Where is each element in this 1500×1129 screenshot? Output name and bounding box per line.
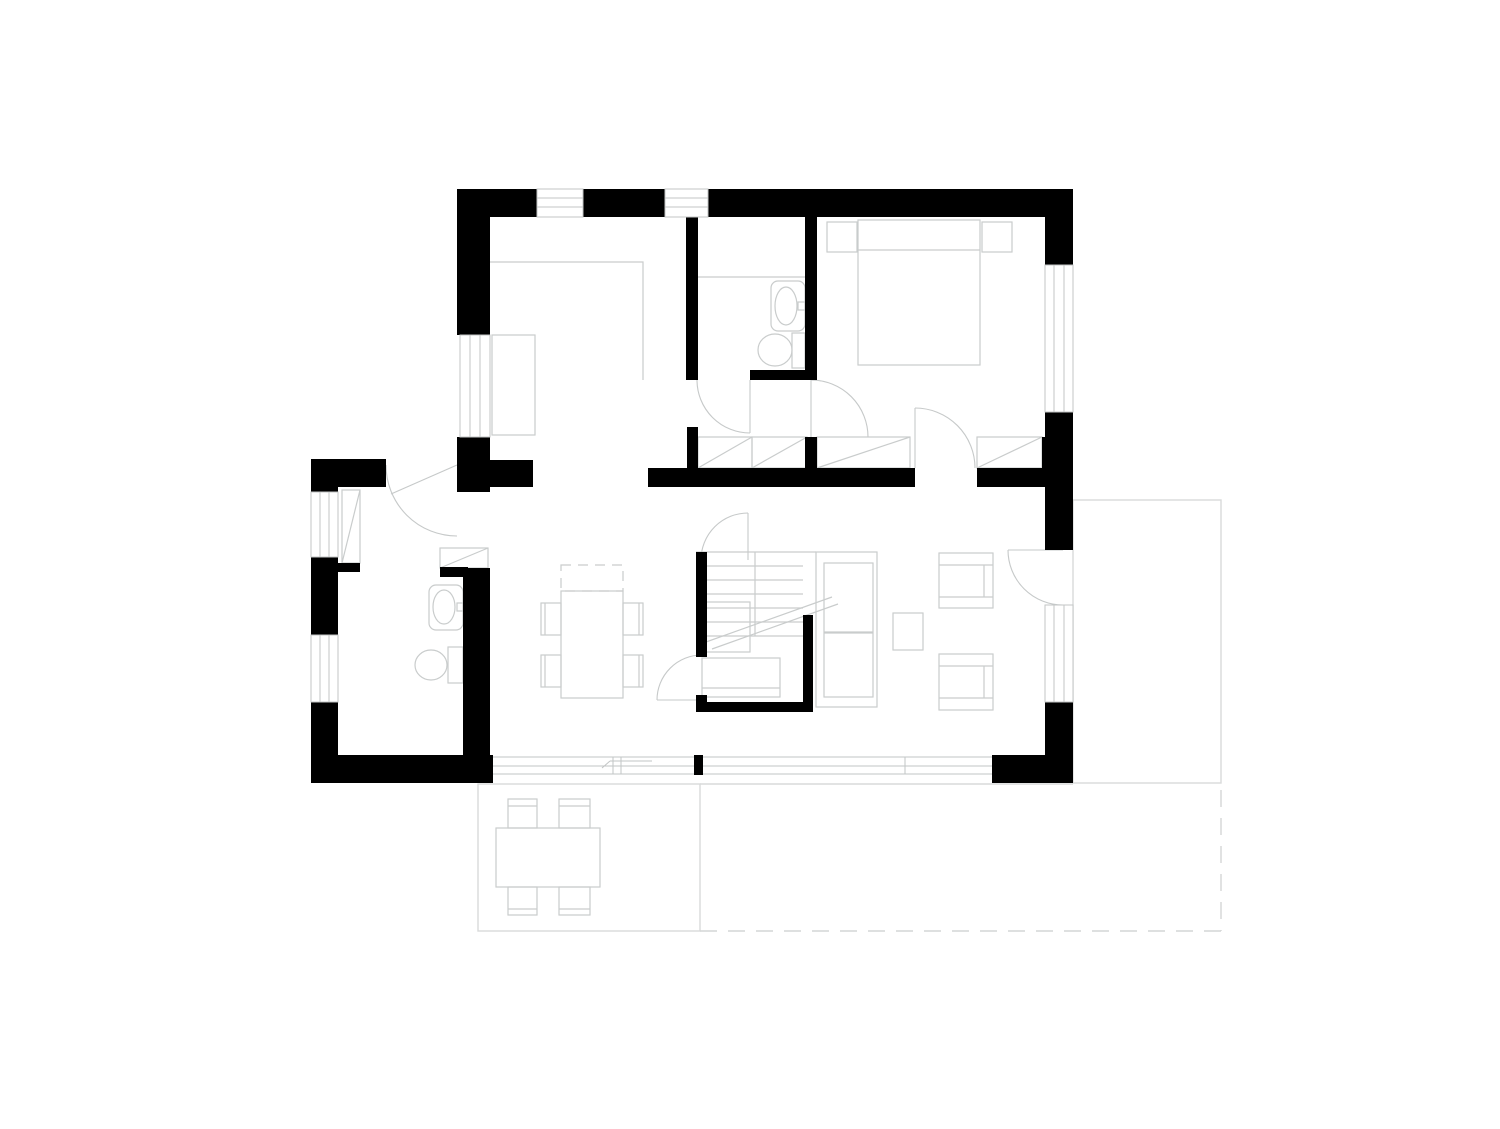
wall-top — [708, 189, 1073, 217]
carport-outline — [1073, 500, 1221, 783]
dining-chair — [623, 655, 643, 687]
sofa-cushion — [824, 633, 873, 697]
wall-bath-bedroom — [805, 217, 817, 380]
stair-break-line — [712, 604, 838, 649]
wardrobe-diagonal — [817, 437, 910, 468]
sofa — [816, 552, 877, 707]
window — [1045, 265, 1073, 412]
wall-hall-living — [648, 468, 915, 487]
closet-box — [703, 602, 750, 652]
wall-stair — [803, 615, 813, 712]
wc-faucet — [457, 603, 463, 611]
wall-pier — [694, 755, 703, 775]
armchair — [939, 654, 993, 710]
wall-wc-top — [338, 563, 360, 572]
door-swing-arc — [657, 655, 702, 700]
dashed-boundary — [700, 790, 1221, 931]
armchair — [939, 553, 993, 608]
bath-toilet-bowl — [758, 334, 792, 366]
coffee-table — [893, 613, 923, 650]
window — [1045, 605, 1073, 702]
wall-stair — [696, 552, 707, 657]
wall-annex-left — [311, 557, 338, 635]
wall-bottom — [992, 755, 1073, 783]
patio-chair — [508, 887, 537, 915]
bed — [858, 220, 980, 365]
glass-wall — [493, 757, 992, 774]
nightstand — [982, 222, 1012, 252]
bath-toilet-tank — [792, 333, 805, 368]
stair-break-line — [706, 597, 832, 642]
window — [665, 189, 708, 217]
bath-faucet — [798, 302, 805, 310]
wardrobe-diagonal — [752, 437, 807, 468]
wc-sink-basin — [433, 590, 455, 624]
sliding-door-symbol — [602, 761, 610, 768]
patio-table — [496, 828, 600, 887]
wardrobe-diagonal — [977, 437, 1042, 468]
site-outlines — [478, 500, 1221, 931]
wall-stub — [1042, 437, 1073, 468]
dining-chair — [623, 603, 643, 635]
door-swing-arc — [386, 465, 457, 536]
wall-left — [457, 437, 490, 492]
door-leaf — [391, 465, 457, 494]
floor-plan-page — [0, 0, 1500, 1129]
under-stair-shelf — [702, 658, 780, 697]
window — [311, 492, 338, 557]
patio-chair — [508, 799, 537, 828]
floor-plan-svg — [0, 0, 1500, 1129]
wall-stair — [696, 702, 813, 712]
patio-chair — [559, 799, 590, 828]
wall-kitchen-south — [490, 460, 533, 487]
door-swing-arc — [697, 380, 750, 433]
kitchen-counter-edge — [490, 262, 643, 380]
wall-wc-top — [440, 567, 468, 577]
nightstand — [827, 222, 857, 252]
wall-hall-living — [977, 468, 1073, 487]
door-swing-arc — [1008, 550, 1063, 605]
wall-stub — [687, 427, 698, 468]
wall-wc-right — [463, 568, 490, 755]
door-swing-arc — [811, 380, 868, 437]
wall-bath-south — [750, 370, 805, 380]
walls — [311, 189, 1073, 783]
wall-right — [1045, 217, 1073, 265]
window — [311, 635, 338, 702]
door-swing-arc — [701, 513, 748, 560]
wc-toilet-bowl — [415, 650, 447, 680]
coat-closet-diagonal — [342, 490, 360, 563]
window — [537, 189, 583, 217]
wc-toilet-tank — [448, 647, 463, 683]
dining-table-extension-dashed — [561, 565, 623, 591]
dining-table — [561, 591, 623, 698]
wall-kitchen-bath — [686, 217, 698, 380]
wall-top — [583, 189, 665, 217]
window — [460, 335, 490, 437]
kitchen-cabinet — [492, 335, 535, 435]
wall-annex-bottom — [311, 755, 493, 783]
wardrobe-diagonal — [698, 437, 752, 468]
dining-chair — [541, 655, 561, 687]
wall-annex-left — [311, 459, 338, 492]
shoe-cabinet-diagonal — [440, 548, 488, 568]
patio-chair — [559, 887, 590, 915]
door-swing-arc — [915, 408, 975, 468]
dining-chair — [541, 603, 561, 635]
wall-left — [457, 189, 490, 335]
wall-stub — [805, 437, 817, 468]
bath-sink-basin — [775, 287, 797, 325]
bath-sink — [771, 281, 805, 331]
